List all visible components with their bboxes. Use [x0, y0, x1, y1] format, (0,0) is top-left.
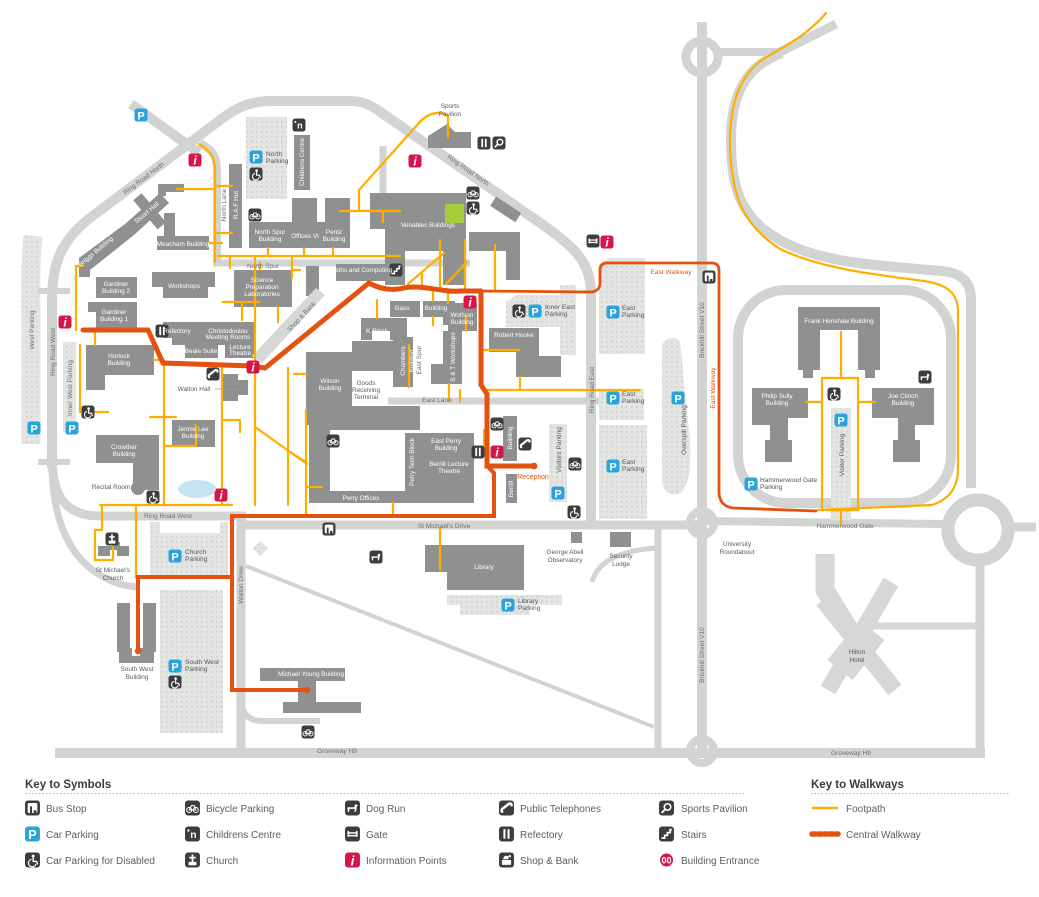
svg-text:Sports Pavilion: Sports Pavilion — [681, 804, 748, 815]
svg-text:Theatre: Theatre — [229, 350, 251, 357]
svg-text:Workshops: Workshops — [168, 283, 200, 290]
svg-text:Central Walkway: Central Walkway — [846, 830, 921, 841]
svg-text:Chambers: Chambers — [400, 346, 407, 375]
svg-text:Church: Church — [206, 856, 238, 867]
svg-text:Building: Building — [126, 674, 149, 681]
svg-text:Building: Building — [108, 360, 131, 367]
svg-text:Building: Building — [259, 236, 282, 243]
svg-text:East: East — [622, 391, 635, 398]
svg-text:Inner West Parking: Inner West Parking — [67, 360, 74, 416]
svg-text:Stairs: Stairs — [681, 830, 707, 841]
svg-text:Building: Building — [435, 445, 458, 452]
svg-text:Venables Buildings: Venables Buildings — [401, 222, 455, 229]
svg-text:Bus Stop: Bus Stop — [46, 804, 87, 815]
svg-text:South West: South West — [185, 659, 219, 666]
svg-text:Parking: Parking — [545, 311, 568, 318]
svg-text:St Michael's Drive: St Michael's Drive — [418, 523, 471, 530]
svg-text:Michael Young Building: Michael Young Building — [278, 671, 345, 678]
svg-text:Gass: Gass — [395, 305, 410, 312]
svg-text:Pentz: Pentz — [326, 229, 342, 236]
svg-text:Visitor Parking: Visitor Parking — [839, 433, 846, 476]
svg-text:Building: Building — [323, 236, 346, 243]
svg-text:North Spur: North Spur — [247, 263, 280, 270]
svg-text:West Parking: West Parking — [29, 310, 36, 349]
svg-text:Parking: Parking — [760, 484, 783, 491]
svg-text:S & T Workshops: S & T Workshops — [450, 332, 457, 381]
svg-text:Church: Church — [185, 549, 207, 556]
svg-text:Groveway H9: Groveway H9 — [317, 748, 357, 755]
svg-text:Theatre: Theatre — [438, 468, 460, 475]
svg-text:Building: Building — [766, 400, 789, 407]
svg-text:Building: Building — [425, 305, 448, 312]
svg-text:Building: Building — [451, 319, 474, 326]
svg-text:Parking: Parking — [622, 466, 645, 473]
svg-text:Building: Building — [507, 426, 514, 449]
svg-text:Car Parking for Disabled: Car Parking for Disabled — [46, 856, 155, 867]
svg-text:Car Parking: Car Parking — [46, 830, 99, 841]
svg-text:South West: South West — [121, 666, 154, 673]
svg-text:East Spur: East Spur — [416, 345, 423, 375]
svg-text:Goods: Goods — [357, 380, 376, 387]
svg-text:Parking: Parking — [622, 398, 645, 405]
svg-text:East Lane: East Lane — [422, 397, 452, 404]
svg-text:Recital Room: Recital Room — [92, 484, 130, 491]
svg-text:Sports: Sports — [441, 103, 459, 110]
svg-text:East: East — [622, 305, 635, 312]
svg-text:Ring Road West: Ring Road West — [144, 513, 192, 520]
svg-text:Lodge: Lodge — [612, 561, 630, 568]
svg-text:Building 1: Building 1 — [100, 316, 129, 323]
svg-text:Hilton: Hilton — [849, 649, 866, 656]
svg-text:Wilson: Wilson — [320, 378, 340, 385]
svg-text:Building Entrance: Building Entrance — [681, 856, 760, 867]
svg-text:Gate: Gate — [366, 830, 388, 841]
svg-text:Building: Building — [182, 433, 205, 440]
svg-text:Brickhill Street V10: Brickhill Street V10 — [699, 627, 706, 683]
svg-text:Meeting Rooms: Meeting Rooms — [206, 334, 251, 341]
svg-text:East Perry: East Perry — [431, 438, 462, 445]
svg-text:East Walkway: East Walkway — [650, 269, 692, 276]
svg-text:Dog Run: Dog Run — [366, 804, 405, 815]
svg-text:Inner East: Inner East — [545, 304, 575, 311]
svg-text:Parking: Parking — [622, 312, 645, 319]
svg-text:Church: Church — [103, 575, 124, 582]
svg-text:Security: Security — [609, 553, 633, 560]
svg-text:Gardiner: Gardiner — [104, 281, 130, 288]
svg-text:Ring Road East: Ring Road East — [589, 367, 596, 413]
svg-text:Berrill Lecture: Berrill Lecture — [429, 461, 469, 468]
svg-text:Parking: Parking — [518, 605, 541, 612]
svg-text:Gardiner: Gardiner — [102, 309, 128, 316]
svg-text:Shop & Bank: Shop & Bank — [520, 856, 579, 867]
svg-text:Overspill Parking: Overspill Parking — [681, 405, 688, 455]
svg-text:Library: Library — [518, 598, 539, 605]
svg-text:Building 2: Building 2 — [102, 288, 131, 295]
svg-text:Key to Symbols: Key to Symbols — [25, 779, 111, 791]
svg-text:Reception: Reception — [517, 474, 549, 481]
svg-text:Bicycle Parking: Bicycle Parking — [206, 804, 274, 815]
svg-text:Laboratories: Laboratories — [244, 291, 280, 298]
svg-text:North: North — [266, 151, 282, 158]
svg-text:Ring Road West: Ring Road West — [50, 328, 57, 376]
svg-text:R.A.F Hut: R.A.F Hut — [233, 191, 240, 219]
svg-text:Terminal: Terminal — [354, 394, 378, 401]
svg-text:Groveway H9: Groveway H9 — [831, 750, 871, 757]
svg-text:East: East — [622, 459, 635, 466]
svg-text:Observatory: Observatory — [548, 557, 584, 564]
svg-text:Preparation: Preparation — [245, 284, 278, 291]
svg-text:Wolfson: Wolfson — [451, 312, 474, 319]
svg-text:Refectory: Refectory — [520, 830, 563, 841]
svg-text:Parking: Parking — [185, 666, 208, 673]
svg-text:Jennie Lee: Jennie Lee — [177, 426, 209, 433]
svg-text:Roundabout: Roundabout — [720, 549, 755, 556]
svg-text:Building: Building — [892, 400, 915, 407]
svg-text:Meacham Building: Meacham Building — [157, 241, 210, 248]
svg-text:Perry Tech Block: Perry Tech Block — [409, 437, 416, 486]
svg-text:Childrens Centre: Childrens Centre — [299, 138, 306, 186]
svg-text:Parking: Parking — [266, 158, 289, 165]
svg-text:Public Telephones: Public Telephones — [520, 804, 601, 815]
svg-text:Berrill: Berrill — [508, 481, 515, 497]
svg-text:Horlock: Horlock — [108, 353, 130, 360]
svg-text:Science: Science — [251, 277, 274, 284]
svg-text:Hotel: Hotel — [850, 657, 865, 664]
svg-text:Robert Hooke: Robert Hooke — [494, 332, 534, 339]
svg-text:Parking: Parking — [185, 556, 208, 563]
svg-text:Beale Suite: Beale Suite — [185, 348, 218, 355]
svg-text:North Spur: North Spur — [255, 229, 287, 236]
svg-text:Key to Walkways: Key to Walkways — [811, 779, 904, 791]
svg-text:Building: Building — [113, 451, 136, 458]
svg-text:Footpath: Footpath — [846, 804, 885, 815]
svg-text:Receiving: Receiving — [352, 387, 381, 394]
svg-text:Brickhill Street V10: Brickhill Street V10 — [699, 302, 706, 358]
svg-text:Maths and Computing: Maths and Computing — [330, 267, 393, 274]
svg-text:George Abell: George Abell — [547, 549, 584, 556]
svg-text:Walton Drive: Walton Drive — [238, 566, 245, 604]
svg-text:St Michael's: St Michael's — [96, 567, 130, 574]
svg-text:Walton Hall: Walton Hall — [178, 386, 210, 393]
svg-text:Hammerwood Gate: Hammerwood Gate — [760, 477, 818, 484]
svg-text:Perry Offices: Perry Offices — [343, 495, 380, 502]
svg-text:Frank Henshaw Building: Frank Henshaw Building — [804, 318, 874, 325]
svg-text:Pavilion: Pavilion — [439, 111, 462, 118]
svg-text:Crowther: Crowther — [111, 444, 138, 451]
svg-text:Childrens Centre: Childrens Centre — [206, 830, 281, 841]
svg-text:Building: Building — [319, 385, 342, 392]
svg-text:Refectory: Refectory — [163, 328, 191, 335]
svg-text:Visitors Parking: Visitors Parking — [556, 427, 563, 473]
svg-text:Library: Library — [474, 564, 494, 571]
svg-text:Offices VI: Offices VI — [291, 233, 319, 240]
svg-text:North Lane: North Lane — [221, 188, 228, 221]
svg-text:Building: Building — [409, 349, 416, 372]
svg-text:K Block: K Block — [366, 328, 388, 335]
svg-text:Joe Clinch: Joe Clinch — [888, 393, 918, 400]
svg-text:Hammerwood Gate: Hammerwood Gate — [816, 523, 874, 530]
svg-text:East Walkway: East Walkway — [710, 367, 717, 409]
svg-text:Philip Sully: Philip Sully — [761, 393, 793, 400]
svg-text:University: University — [723, 541, 752, 548]
svg-text:Information Points: Information Points — [366, 856, 447, 867]
